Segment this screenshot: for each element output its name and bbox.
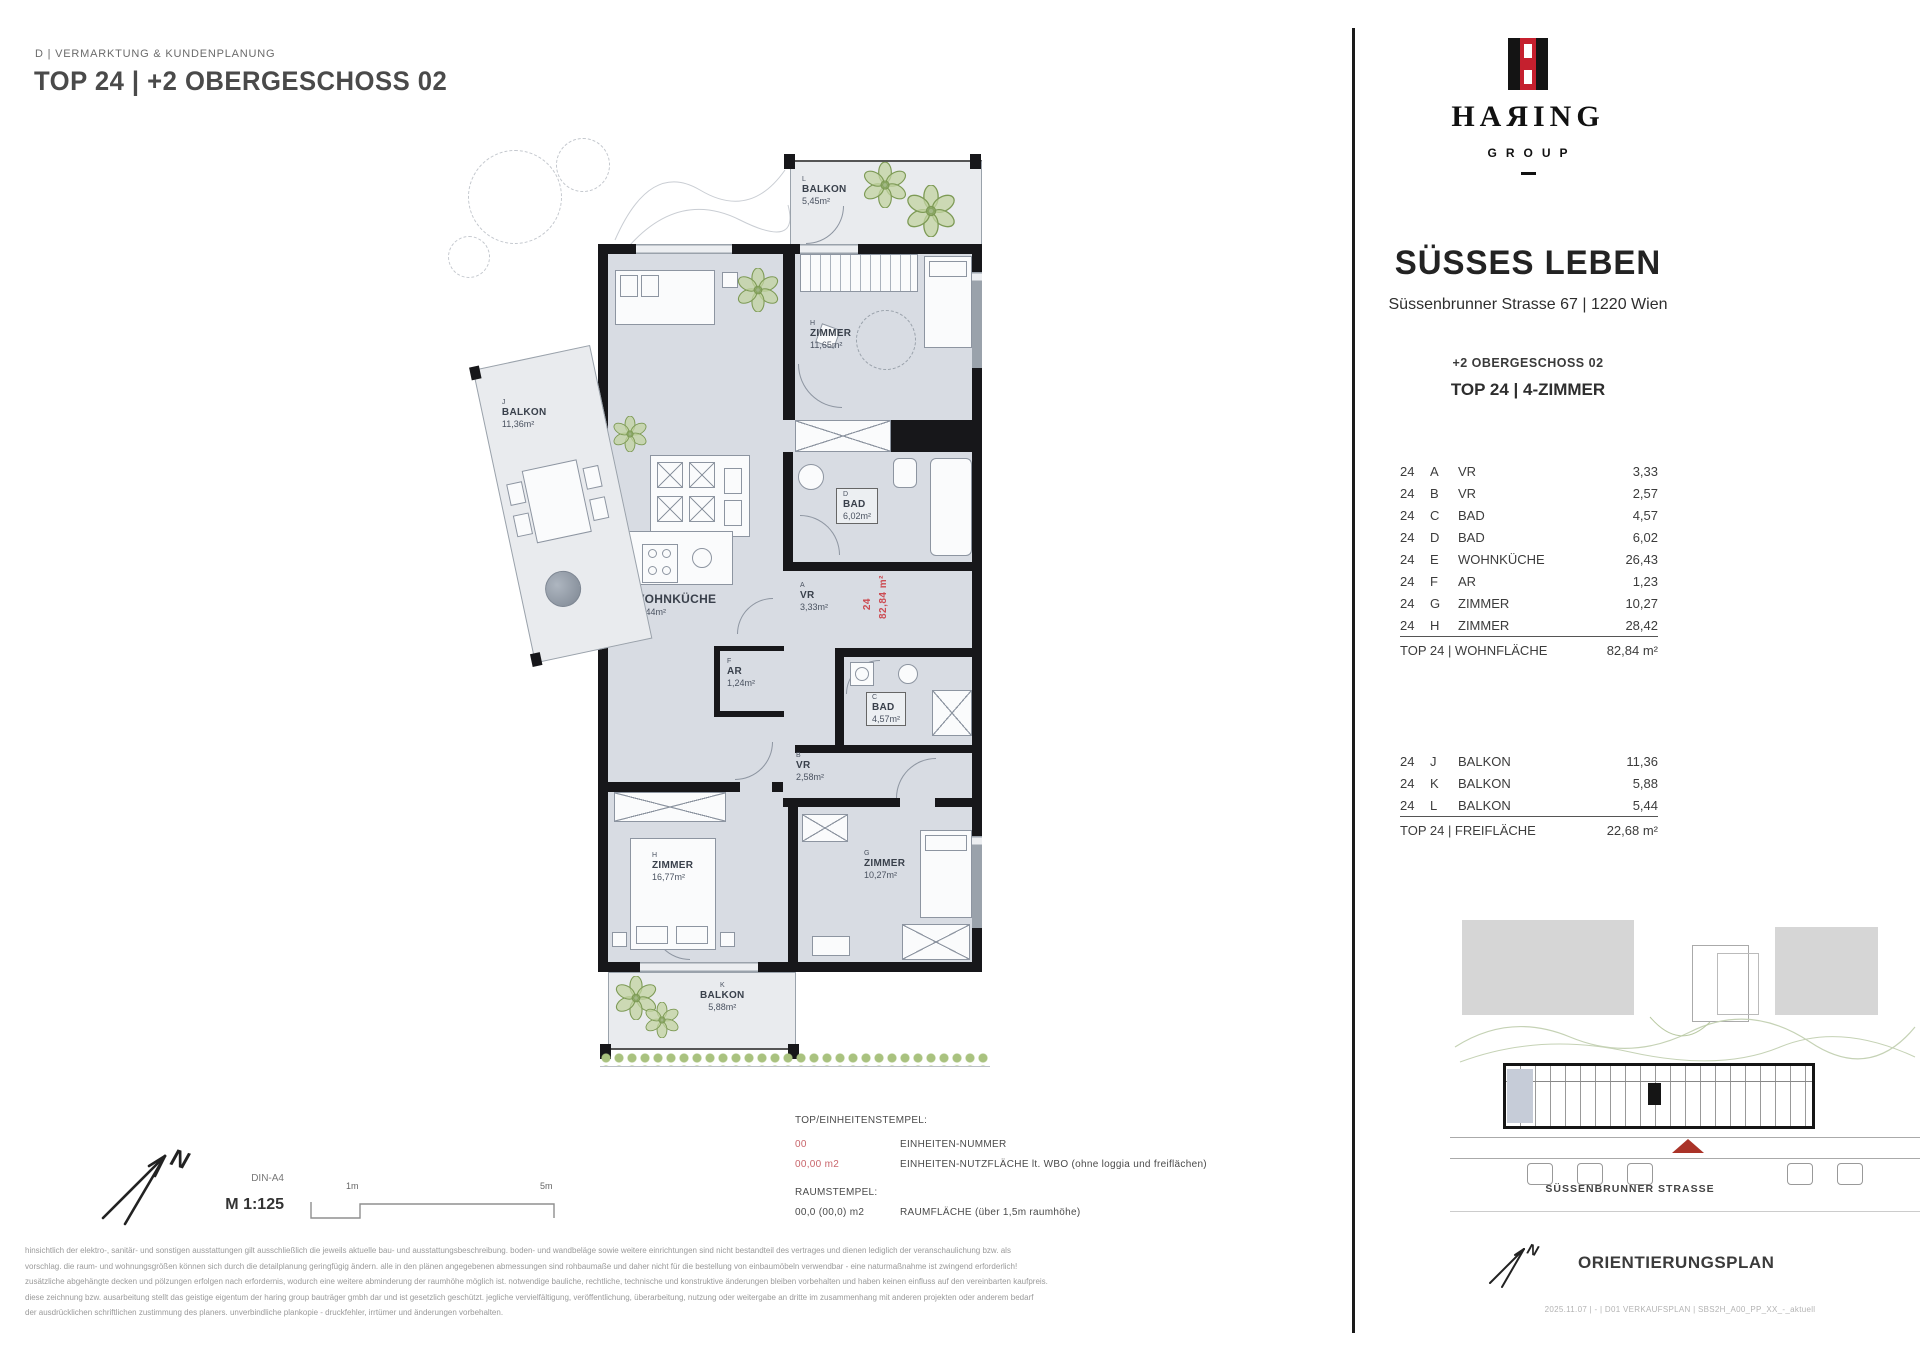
cell-room: AR [1458, 574, 1596, 589]
parking-spot [1627, 1163, 1653, 1185]
room-letter: F [727, 658, 755, 666]
road-line [1450, 1137, 1920, 1138]
total-label: TOP 24 | FREIFLÄCHE [1400, 823, 1607, 838]
room-label-zimmer-right: G ZIMMER 10,27m² [864, 850, 905, 880]
cell-key: H [1430, 618, 1458, 633]
room-letter: H [810, 320, 851, 328]
total-value: 22,68 m² [1607, 823, 1658, 838]
interior-wall [783, 798, 900, 807]
desk [812, 936, 850, 956]
table-row: 24KBALKON5,88 [1400, 772, 1658, 794]
interior-wall [891, 420, 972, 452]
neighbor-building [1462, 920, 1634, 1015]
interior-wall [714, 711, 784, 717]
window [972, 272, 982, 368]
road-line [1450, 1158, 1920, 1159]
room-letter: L [802, 176, 847, 184]
room-name: VR [796, 760, 824, 772]
cell-area: 10,27 [1596, 596, 1658, 611]
sketch-tree-outline [556, 138, 610, 192]
balcony-post [530, 652, 542, 667]
chair [506, 481, 526, 506]
room-label-balcony-top: L BALKON 5,45m² [802, 176, 847, 206]
floor-plan: L BALKON 5,45m² [0, 0, 1352, 1100]
parking-spot [1837, 1163, 1863, 1185]
unit-stamp-legend-title: TOP/EINHEITENSTEMPEL: [795, 1115, 927, 1126]
cell-room: ZIMMER [1458, 596, 1596, 611]
sketch-tree-outline [468, 150, 562, 244]
ground-line [600, 1066, 990, 1067]
room-letter: G [864, 850, 905, 858]
cell-room: BALKON [1458, 776, 1596, 791]
window [800, 244, 858, 254]
room-name: VR [800, 590, 828, 602]
unit-area-desc: EINHEITEN-NUTZFLÄCHE lt. WBO (ohne loggi… [900, 1159, 1207, 1170]
cell-room: BALKON [1458, 754, 1596, 769]
highlighted-stairwell [1507, 1069, 1533, 1123]
plan-footer-code: 2025.11.07 | - | D01 VERKAUFSPLAN | SBS2… [1490, 1305, 1870, 1314]
room-label-zimmer-top: H ZIMMER 11,65m² [810, 320, 851, 350]
cell-key: C [1430, 508, 1458, 523]
cell-key: D [1430, 530, 1458, 545]
cell-room: ZIMMER [1458, 618, 1596, 633]
toilet [893, 458, 917, 488]
road-line [1450, 1211, 1920, 1212]
cell-room: BAD [1458, 530, 1596, 545]
scale-tick-5m: 5m [540, 1181, 553, 1191]
unit-number-sample: 00 [795, 1139, 807, 1150]
window [972, 836, 982, 928]
room-area: 5,45m² [802, 196, 847, 206]
room-area: 2,58m² [796, 772, 824, 782]
disclaimer-line: diese zeichnung bzw. ausarbeitung stellt… [25, 1290, 1330, 1306]
cell-key: J [1430, 754, 1458, 769]
interior-wall [783, 562, 982, 571]
unit-number-desc: EINHEITEN-NUMMER [900, 1139, 1006, 1150]
cell-top: 24 [1400, 798, 1430, 813]
project-name: SÜSSES LEBEN [1384, 244, 1671, 283]
cell-key: L [1430, 798, 1458, 813]
room-letter: B [796, 752, 824, 760]
haring-logo-icon [1508, 38, 1548, 90]
room-area-desc: RAUMFLÄCHE (über 1,5m raumhöhe) [900, 1207, 1080, 1218]
logo-notch [1524, 70, 1532, 84]
cell-room: VR [1458, 464, 1596, 479]
plant-icon [644, 1002, 680, 1038]
unit-stamp-area: 82,84 m² [878, 575, 889, 619]
table-row: 24FAR1,23 [1400, 570, 1658, 592]
brand-name: HAЯING [1408, 100, 1648, 134]
room-label-zimmer-left: H ZIMMER 16,77m² [652, 852, 693, 882]
rug [856, 310, 916, 370]
unit-area-sample: 00,00 m2 [795, 1159, 839, 1170]
brand-group: GROUP [1412, 146, 1652, 160]
north-arrow-icon: N [95, 1130, 205, 1230]
room-letter: H [652, 852, 693, 860]
washbasin [898, 664, 918, 684]
cell-top: 24 [1400, 596, 1430, 611]
interior-wall [935, 798, 982, 807]
cell-top: 24 [1400, 754, 1430, 769]
room-label-vr-top: A VR 3,33m² [800, 582, 828, 612]
shower [932, 690, 972, 736]
burner [648, 566, 657, 575]
cell-top: 24 [1400, 574, 1430, 589]
interior-wall [608, 782, 740, 792]
sink [692, 548, 712, 568]
room-label-balcony-left: J BALKON 11,36m² [502, 399, 547, 429]
wardrobe [795, 420, 891, 452]
scale-bar [310, 1198, 560, 1222]
chair [582, 465, 602, 490]
nightstand [720, 932, 735, 947]
entrance-marker [1672, 1139, 1704, 1153]
paper-format-label: DIN-A4 [208, 1173, 284, 1184]
room-name: BALKON [502, 407, 547, 419]
cell-area: 28,42 [1596, 618, 1658, 633]
svg-text:N: N [167, 1144, 192, 1175]
parking-spot [1577, 1163, 1603, 1185]
chair [724, 468, 742, 494]
room-letter: C [872, 694, 900, 702]
cell-room: BALKON [1458, 798, 1596, 813]
room-area: 1,24m² [727, 678, 755, 688]
stove [642, 544, 678, 583]
interior-wall [772, 782, 783, 792]
interior-wall [783, 254, 795, 420]
cell-room: WOHNKÜCHE [1458, 552, 1596, 567]
nightstand [612, 932, 627, 947]
unit-label: TOP 24 | 4-ZIMMER [1380, 380, 1676, 400]
room-name: AR [727, 666, 755, 678]
room-label-bad-bottom: C BAD 4,57m² [866, 692, 906, 726]
disclaimer-line: der ausdrücklichen schriftlichen zustimm… [25, 1305, 1330, 1321]
pillow [925, 835, 967, 851]
cell-area: 26,43 [1596, 552, 1658, 567]
room-label-ar: F AR 1,24m² [727, 658, 755, 688]
room-name: WOHNKÜCHE [633, 593, 716, 607]
sketch-tree-outline [448, 236, 490, 278]
floor-label: +2 OBERGESCHOSS 02 [1380, 356, 1676, 370]
chair [589, 496, 609, 521]
room-name: BAD [872, 702, 900, 714]
cell-area: 5,44 [1596, 798, 1658, 813]
cell-room: VR [1458, 486, 1596, 501]
room-area: 11,36m² [502, 419, 547, 429]
room-area: 11,65m² [810, 340, 851, 350]
unit-stamp-number: 24 [862, 598, 873, 610]
chair [513, 512, 533, 537]
disclaimer-text: hinsichtlich der elektro-, sanitär- und … [25, 1243, 1330, 1321]
cell-area: 2,57 [1596, 486, 1658, 501]
orientation-plan-title: ORIENTIERUNGSPLAN [1578, 1253, 1774, 1273]
ottoman [542, 568, 585, 611]
scale-tick-1m: 1m [346, 1181, 359, 1191]
table-row: 24CBAD4,57 [1400, 504, 1658, 526]
bathtub [930, 458, 972, 556]
cell-key: K [1430, 776, 1458, 791]
cell-top: 24 [1400, 486, 1430, 501]
cell-key: A [1430, 464, 1458, 479]
table-row: 24JBALKON11,36 [1400, 750, 1658, 772]
interior-wall [714, 646, 720, 716]
balcony-post [784, 154, 795, 169]
svg-text:N: N [1525, 1241, 1542, 1261]
chair [657, 496, 683, 522]
plant-icon [736, 268, 780, 312]
cell-key: F [1430, 574, 1458, 589]
room-name: ZIMMER [652, 860, 693, 872]
room-letter: K [720, 982, 725, 990]
chair [657, 462, 683, 488]
table-row: 24EWOHNKÜCHE26,43 [1400, 548, 1658, 570]
table-row: 24HZIMMER28,42 [1400, 614, 1658, 636]
chair [724, 500, 742, 526]
parking-spot [1787, 1163, 1813, 1185]
table-row: 24BVR2,57 [1400, 482, 1658, 504]
greenery-sketch [1450, 1007, 1920, 1067]
table-row: 24AVR3,33 [1400, 460, 1658, 482]
cell-top: 24 [1400, 530, 1430, 545]
table-total-row: TOP 24 | WOHNFLÄCHE82,84 m² [1400, 637, 1658, 663]
cell-room: BAD [1458, 508, 1596, 523]
window [636, 244, 732, 254]
orientation-plan: SÜSSENBRUNNER STRASSE N ORIENTIERUNGSPLA… [1450, 915, 1920, 1335]
cell-key: G [1430, 596, 1458, 611]
cell-area: 11,36 [1596, 754, 1658, 769]
site-north-arrow-icon: N [1486, 1233, 1546, 1291]
balcony-door [640, 962, 758, 972]
cell-area: 4,57 [1596, 508, 1658, 523]
washing-machine-door [855, 667, 869, 681]
parking-spot [1527, 1163, 1553, 1185]
cell-area: 5,88 [1596, 776, 1658, 791]
wardrobe [614, 792, 726, 822]
pillow [929, 261, 967, 277]
room-label-vr-bottom: B VR 2,58m² [796, 752, 824, 782]
building-core [1648, 1083, 1661, 1105]
logo-notch [1524, 44, 1532, 58]
cell-area: 1,23 [1596, 574, 1658, 589]
burner [662, 549, 671, 558]
wardrobe [800, 254, 918, 292]
plant-icon [862, 162, 908, 208]
plant-icon [612, 416, 648, 452]
burner [662, 566, 671, 575]
cushion [620, 275, 638, 297]
neighbor-building [1775, 927, 1878, 1015]
outdoor-table: 24JBALKON11,36 24KBALKON5,88 24LBALKON5,… [1400, 750, 1658, 843]
pillow [636, 926, 668, 944]
cell-key: B [1430, 486, 1458, 501]
plant-icon [905, 185, 957, 237]
room-area-sample: 00,0 (00,0) m2 [795, 1207, 864, 1218]
cushion [641, 275, 659, 297]
room-area: 5,88m² [708, 1002, 736, 1012]
table-row: 24DBAD6,02 [1400, 526, 1658, 548]
brand-dash [1521, 172, 1536, 175]
room-name: BALKON [700, 990, 745, 1002]
hedge [600, 1052, 990, 1066]
room-label-balcony-bottom: K BALKON 5,88m² [700, 982, 745, 1012]
table-row: 24GZIMMER10,27 [1400, 592, 1658, 614]
balcony-post [970, 154, 981, 169]
burner [648, 549, 657, 558]
cell-top: 24 [1400, 508, 1430, 523]
pillow [676, 926, 708, 944]
cell-area: 6,02 [1596, 530, 1658, 545]
interior-wall [714, 646, 784, 651]
room-letter: J [502, 399, 547, 407]
scale-label: M 1:125 [208, 1196, 284, 1214]
street-label: SÜSSENBRUNNER STRASSE [1510, 1183, 1750, 1195]
interior-wall [788, 807, 798, 962]
wardrobe [902, 924, 970, 960]
room-name: ZIMMER [810, 328, 851, 340]
cell-top: 24 [1400, 618, 1430, 633]
cell-top: 24 [1400, 464, 1430, 479]
washbasin [798, 464, 824, 490]
table-row: 24LBALKON5,44 [1400, 794, 1658, 816]
project-address: Süssenbrunner Strasse 67 | 1220 Wien [1360, 296, 1696, 314]
room-area: 3,33m² [800, 602, 828, 612]
room-name: BAD [843, 499, 871, 511]
total-value: 82,84 m² [1607, 643, 1658, 658]
room-table: 24AVR3,33 24BVR2,57 24CBAD4,57 24DBAD6,0… [1400, 460, 1658, 663]
cell-top: 24 [1400, 552, 1430, 567]
cell-top: 24 [1400, 776, 1430, 791]
room-area: 4,57m² [872, 714, 900, 724]
room-letter: D [843, 491, 871, 499]
balcony-post [469, 366, 481, 381]
cabinet [802, 814, 848, 842]
total-label: TOP 24 | WOHNFLÄCHE [1400, 643, 1607, 658]
sketch-plant-lines [610, 150, 790, 250]
table-total-row: TOP 24 | FREIFLÄCHE22,68 m² [1400, 817, 1658, 843]
cell-key: E [1430, 552, 1458, 567]
disclaimer-line: hinsichtlich der elektro-, sanitär- und … [25, 1243, 1330, 1259]
room-label-bad-top: D BAD 6,02m² [836, 488, 878, 524]
room-name: ZIMMER [864, 858, 905, 870]
room-area: 16,77m² [652, 872, 693, 882]
room-name: BALKON [802, 184, 847, 196]
room-letter: A [800, 582, 828, 590]
cell-area: 3,33 [1596, 464, 1658, 479]
disclaimer-line: zusätzliche abgehängte decken und pölzun… [25, 1274, 1330, 1290]
room-area: 10,27m² [864, 870, 905, 880]
interior-wall [835, 648, 982, 657]
chair [689, 496, 715, 522]
interior-wall [835, 648, 844, 748]
disclaimer-line: vorschlag. die raum- und wohnungsgrößen … [25, 1259, 1330, 1275]
chair [689, 462, 715, 488]
panel-divider [1352, 28, 1355, 1333]
room-area: 6,02m² [843, 511, 871, 521]
room-stamp-legend-title: RAUMSTEMPEL: [795, 1187, 878, 1198]
interior-wall [783, 452, 793, 564]
neighbor-structure [1717, 953, 1759, 1015]
